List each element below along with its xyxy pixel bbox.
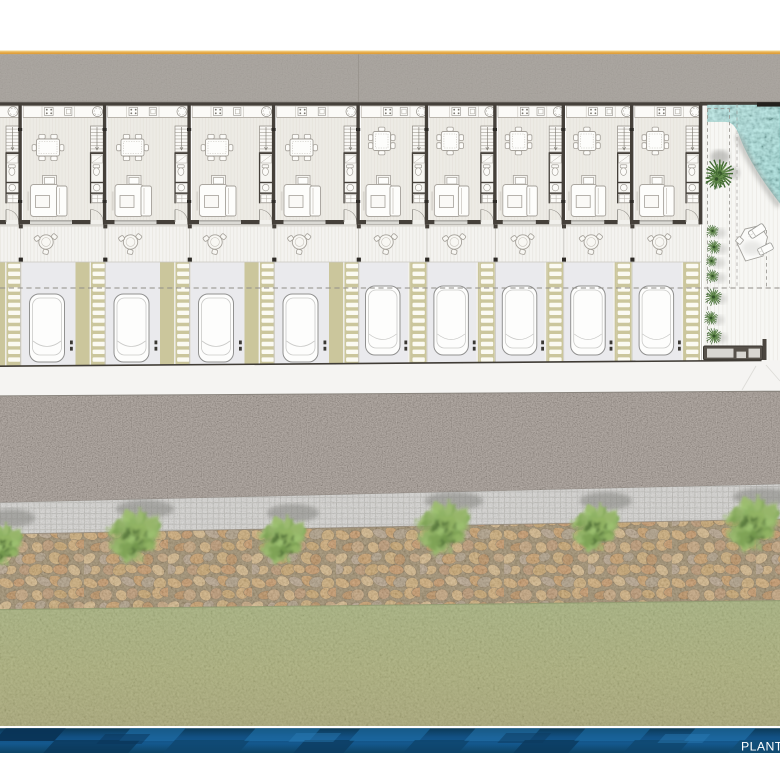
svg-text:PLANTA: PLANTA bbox=[741, 740, 780, 754]
